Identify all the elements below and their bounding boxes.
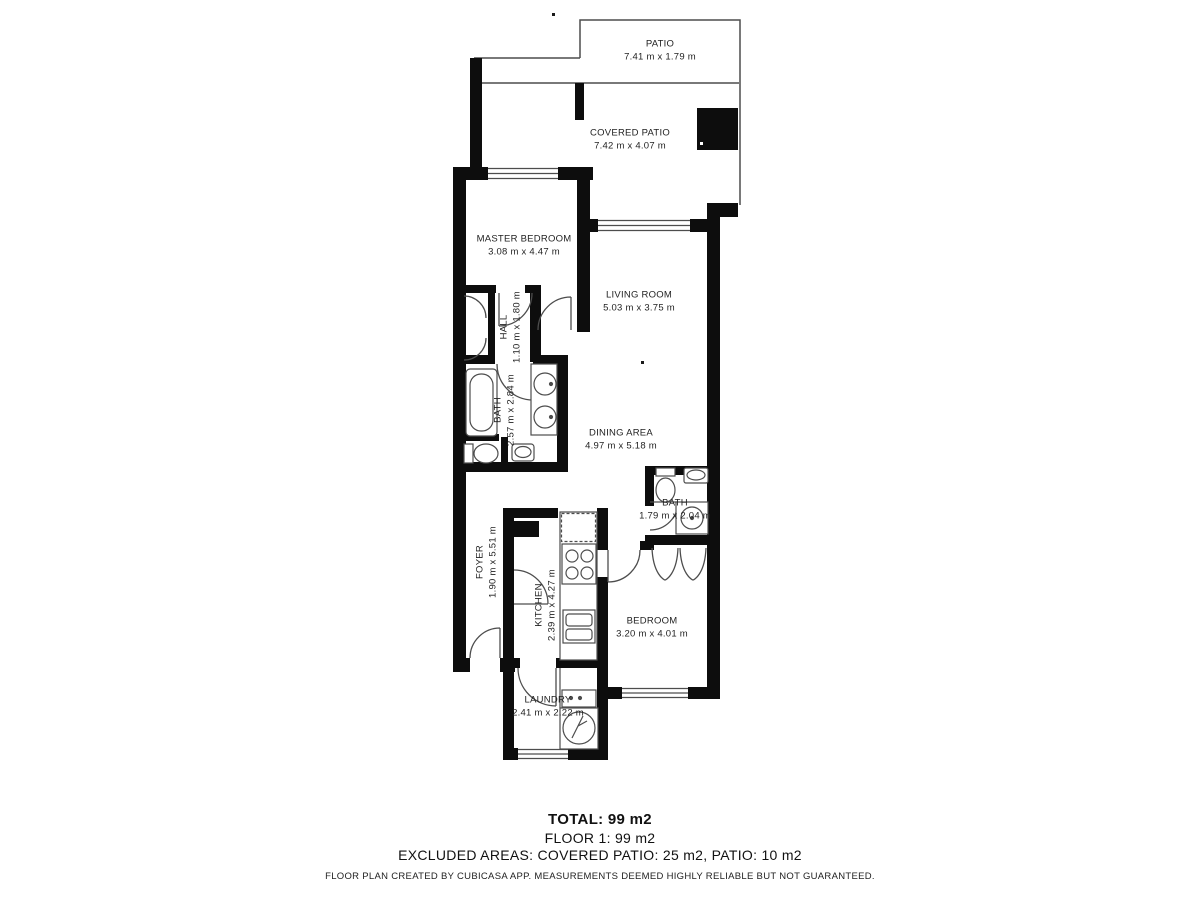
room-label-dining-area: DINING AREA 4.97 m x 5.18 m — [585, 427, 657, 452]
excluded-areas-text: EXCLUDED AREAS: COVERED PATIO: 25 m2, PA… — [0, 847, 1200, 863]
bedroom-door — [608, 550, 640, 582]
room-label-living-room: LIVING ROOM 5.03 m x 3.75 m — [603, 289, 675, 314]
disclaimer-text: FLOOR PLAN CREATED BY CUBICASA APP. MEAS… — [0, 871, 1200, 882]
master-bedroom-window — [488, 167, 558, 180]
small-sink-master — [512, 444, 534, 461]
room-label-bedroom: BEDROOM 3.20 m x 4.01 m — [616, 615, 688, 640]
laundry-window — [518, 748, 568, 760]
floor-area-text: FLOOR 1: 99 m2 — [0, 830, 1200, 846]
floor-plan-canvas: PATIO 7.41 m x 1.79 m COVERED PATIO 7.42… — [0, 0, 1200, 900]
master-bedroom-door — [538, 297, 571, 330]
room-label-kitchen: KITCHEN 2.39 m x 4.27 m — [533, 569, 558, 641]
room-label-hall: HALL 1.10 m x 1.80 m — [498, 291, 523, 363]
toilet-master — [464, 444, 498, 463]
room-label-bath-master: BATH 2.57 m x 2.84 m — [492, 374, 517, 446]
hall-closet-doors — [464, 296, 486, 360]
room-label-laundry: LAUNDRY 2.41 m x 2.22 m — [512, 694, 584, 719]
fridge — [513, 521, 539, 537]
room-label-bath-2: BATH 1.79 m x 2.04 m — [639, 497, 711, 522]
bedroom-window — [622, 687, 688, 699]
living-room-sliding-door — [598, 219, 690, 232]
room-label-foyer: FOYER 1.90 m x 5.51 m — [474, 526, 499, 598]
room-label-master-bedroom: MASTER BEDROOM 3.08 m x 4.47 m — [477, 233, 572, 258]
total-area-text: TOTAL: 99 m2 — [0, 811, 1200, 828]
bedroom-closet-bifold-doors — [652, 548, 706, 580]
room-label-covered-patio: COVERED PATIO 7.42 m x 4.07 m — [590, 127, 670, 152]
kitchen-sink — [563, 610, 595, 643]
entry-door — [470, 628, 500, 658]
patio-pillar — [697, 108, 738, 150]
room-label-patio: PATIO 7.41 m x 1.79 m — [624, 38, 696, 63]
stove — [562, 544, 596, 584]
sink-bath2 — [684, 468, 708, 483]
double-vanity — [531, 364, 557, 435]
